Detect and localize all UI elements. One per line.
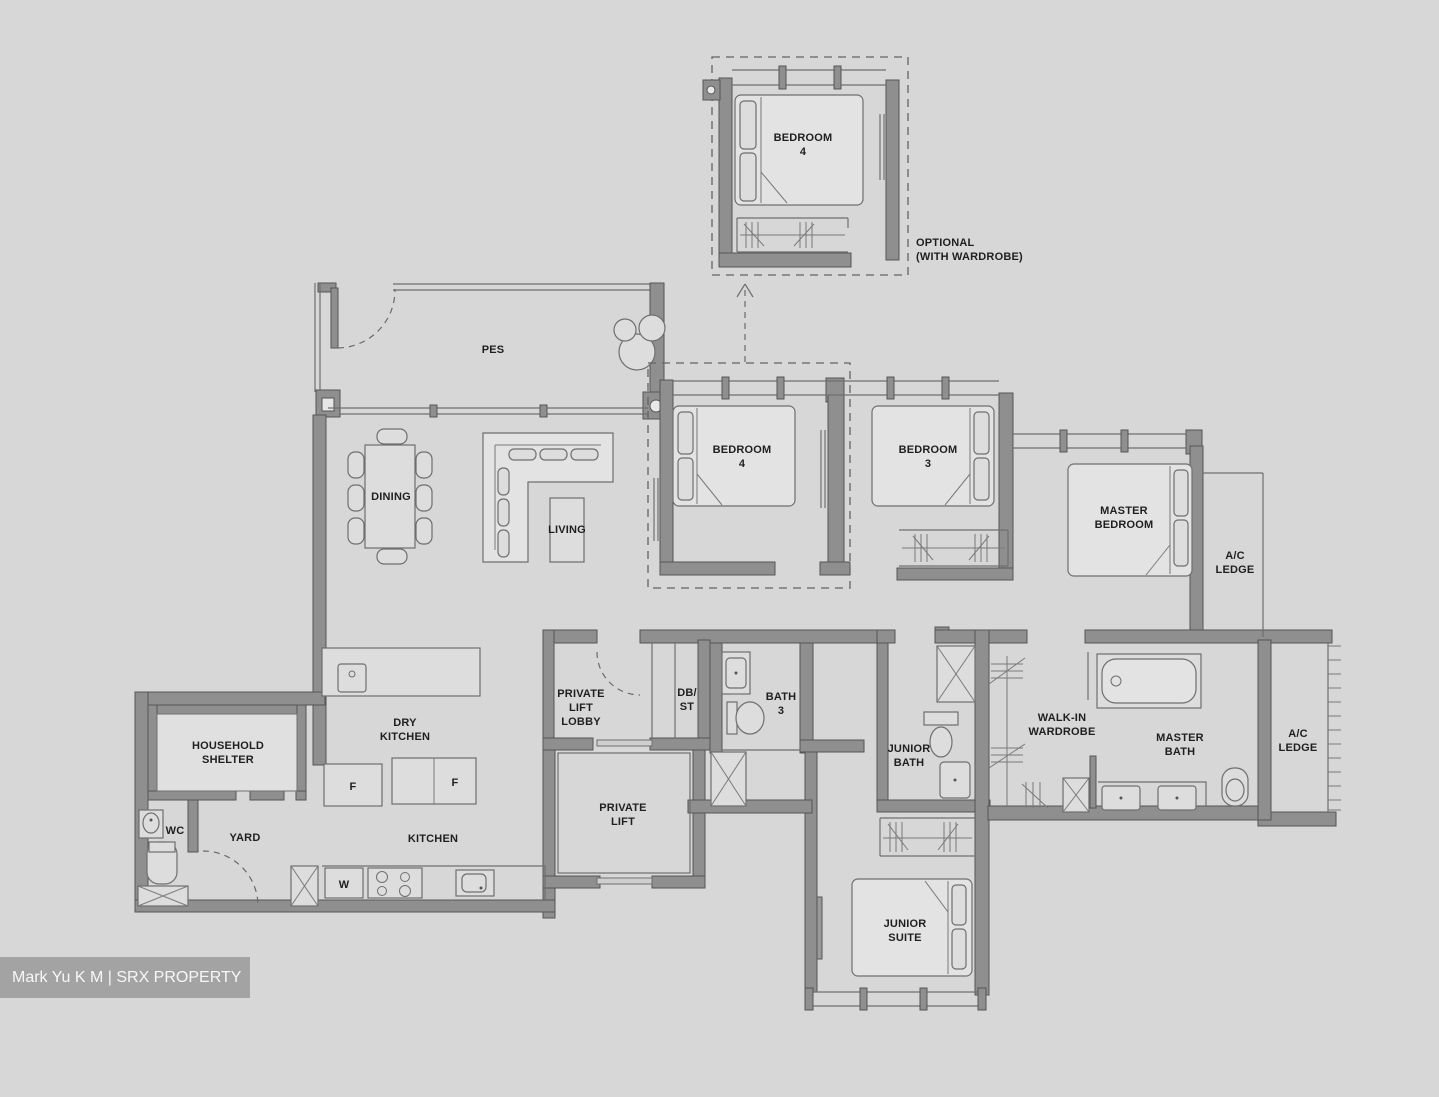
svg-text:LOBBY: LOBBY xyxy=(561,716,601,728)
label-pes: PES xyxy=(482,344,505,356)
stove xyxy=(368,868,422,898)
label-master-bath: MASTER xyxy=(1156,732,1204,744)
label-lift-lobby: PRIVATE xyxy=(557,688,604,700)
kitchen-sink xyxy=(456,870,494,896)
bed-bedroom4 xyxy=(673,406,795,506)
label-ac-ledge-top: A/C xyxy=(1225,550,1245,562)
optional-connector-arrow xyxy=(737,284,753,366)
floor-plan-svg: BEDROOM 4 OPTIONAL (WITH WARDROBE) xyxy=(0,0,1439,1097)
private-lift: PRIVATE LIFT xyxy=(558,740,690,884)
label-bedroom3: BEDROOM xyxy=(899,444,958,456)
label-private-lift: PRIVATE xyxy=(599,802,646,814)
svg-text:WARDROBE: WARDROBE xyxy=(1029,726,1096,738)
junior-bath: JUNIOR BATH xyxy=(888,646,975,798)
master-toilet xyxy=(1222,768,1248,806)
label-bedroom4: BEDROOM xyxy=(713,444,772,456)
svg-text:KITCHEN: KITCHEN xyxy=(380,731,430,743)
label-db-st: DB/ xyxy=(677,687,697,699)
bedroom3: BEDROOM 3 xyxy=(872,406,1008,566)
label-junior-suite: JUNIOR xyxy=(884,918,927,930)
svg-text:BATH: BATH xyxy=(1165,746,1196,758)
watermark: Mark Yu K M | SRX PROPERTY xyxy=(0,957,250,998)
ac-ledge-right: A/C LEDGE xyxy=(1279,643,1341,813)
floor-trap xyxy=(291,866,318,906)
optional-note-line2: (WITH WARDROBE) xyxy=(916,251,1023,263)
label-living: LIVING xyxy=(548,524,586,536)
dining-set: DINING xyxy=(348,429,432,564)
floor-plan-page: BEDROOM 4 OPTIONAL (WITH WARDROBE) xyxy=(0,0,1439,1097)
kitchen: F F W KITCHEN xyxy=(291,758,545,906)
master-bath: MASTER BATH xyxy=(1097,654,1248,810)
wardrobe-junior xyxy=(880,818,975,856)
ac-ledge-top: A/C LEDGE xyxy=(1203,473,1263,637)
bedroom4: BEDROOM 4 xyxy=(648,363,850,588)
optional-bedroom4: BEDROOM 4 xyxy=(703,57,908,275)
svg-text:LEDGE: LEDGE xyxy=(1216,564,1255,576)
master-bedroom: MASTER BEDROOM xyxy=(1068,464,1192,576)
svg-text:4: 4 xyxy=(739,458,746,470)
wardrobe-door xyxy=(1063,778,1089,812)
wardrobe-bedroom3 xyxy=(899,530,1008,566)
label-walk-in-wardrobe: WALK-IN xyxy=(1038,712,1086,724)
label-optional-bedroom: BEDROOM xyxy=(774,132,833,144)
master-sink-1 xyxy=(1102,786,1140,810)
washer: W xyxy=(325,868,363,898)
fridge1-label: F xyxy=(350,781,357,793)
washer-label: W xyxy=(339,879,350,891)
walk-in-wardrobe: WALK-IN WARDROBE xyxy=(989,656,1096,812)
label-wc: WC xyxy=(166,825,185,837)
pes-area: PES xyxy=(315,283,670,419)
junior-sink xyxy=(940,762,970,798)
bed-bedroom3 xyxy=(872,406,994,506)
household-shelter: HOUSEHOLD SHELTER xyxy=(157,714,297,791)
svg-text:LIFT: LIFT xyxy=(611,816,635,828)
bath3-shower xyxy=(711,752,746,806)
label-dining: DINING xyxy=(371,491,411,503)
bath3: BATH 3 xyxy=(711,652,796,806)
bath3-toilet xyxy=(727,702,764,734)
label-bath3: BATH xyxy=(766,691,797,703)
optional-note-line1: OPTIONAL xyxy=(916,237,975,249)
junior-shower xyxy=(937,646,975,702)
bath3-sink xyxy=(722,652,750,694)
svg-text:4: 4 xyxy=(800,146,807,158)
svg-text:3: 3 xyxy=(778,705,784,717)
yard: YARD xyxy=(203,832,260,906)
dry-kitchen: DRY KITCHEN xyxy=(322,648,480,743)
svg-text:SUITE: SUITE xyxy=(888,932,921,944)
svg-text:BEDROOM: BEDROOM xyxy=(1095,519,1154,531)
private-lift-lobby: PRIVATE LIFT LOBBY xyxy=(557,652,640,728)
optional-note: OPTIONAL (WITH WARDROBE) xyxy=(916,237,1023,263)
label-dry-kitchen: DRY xyxy=(393,717,417,729)
junior-suite: JUNIOR SUITE xyxy=(852,818,975,976)
wardrobe-optional xyxy=(737,218,848,252)
fridge2-label: F xyxy=(452,777,459,789)
sofa xyxy=(483,433,613,562)
db-st-closet: DB/ ST xyxy=(677,687,697,713)
label-junior-bath: JUNIOR xyxy=(888,743,931,755)
svg-text:ST: ST xyxy=(680,701,695,713)
label-master-bedroom: MASTER xyxy=(1100,505,1148,517)
coffee-table: LIVING xyxy=(548,498,586,562)
svg-text:LEDGE: LEDGE xyxy=(1279,742,1318,754)
svg-text:LIFT: LIFT xyxy=(569,702,593,714)
label-household-shelter: HOUSEHOLD xyxy=(192,740,264,752)
label-ac-ledge-right: A/C xyxy=(1288,728,1308,740)
svg-text:SHELTER: SHELTER xyxy=(202,754,254,766)
label-kitchen: KITCHEN xyxy=(408,833,458,845)
svg-text:BATH: BATH xyxy=(894,757,925,769)
svg-text:3: 3 xyxy=(925,458,931,470)
bathtub xyxy=(1097,654,1201,708)
label-yard: YARD xyxy=(230,832,261,844)
master-sink-2 xyxy=(1158,786,1196,810)
